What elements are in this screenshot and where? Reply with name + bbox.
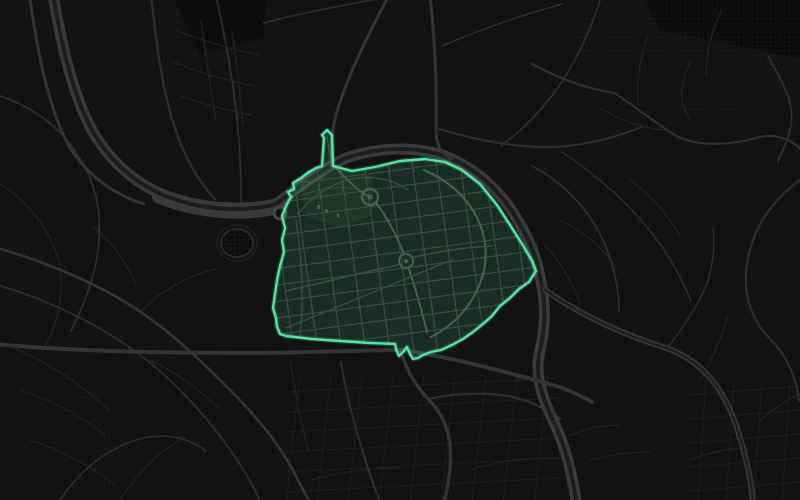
district-roundabout-center [404, 259, 408, 263]
map-viewport[interactable] [0, 0, 800, 500]
district-park-detail [337, 214, 340, 218]
district-park-detail [325, 209, 328, 213]
district-park-detail [317, 205, 320, 209]
district-roundabout-center [367, 194, 372, 199]
map-svg [0, 0, 800, 500]
stadium-texture [224, 232, 250, 254]
